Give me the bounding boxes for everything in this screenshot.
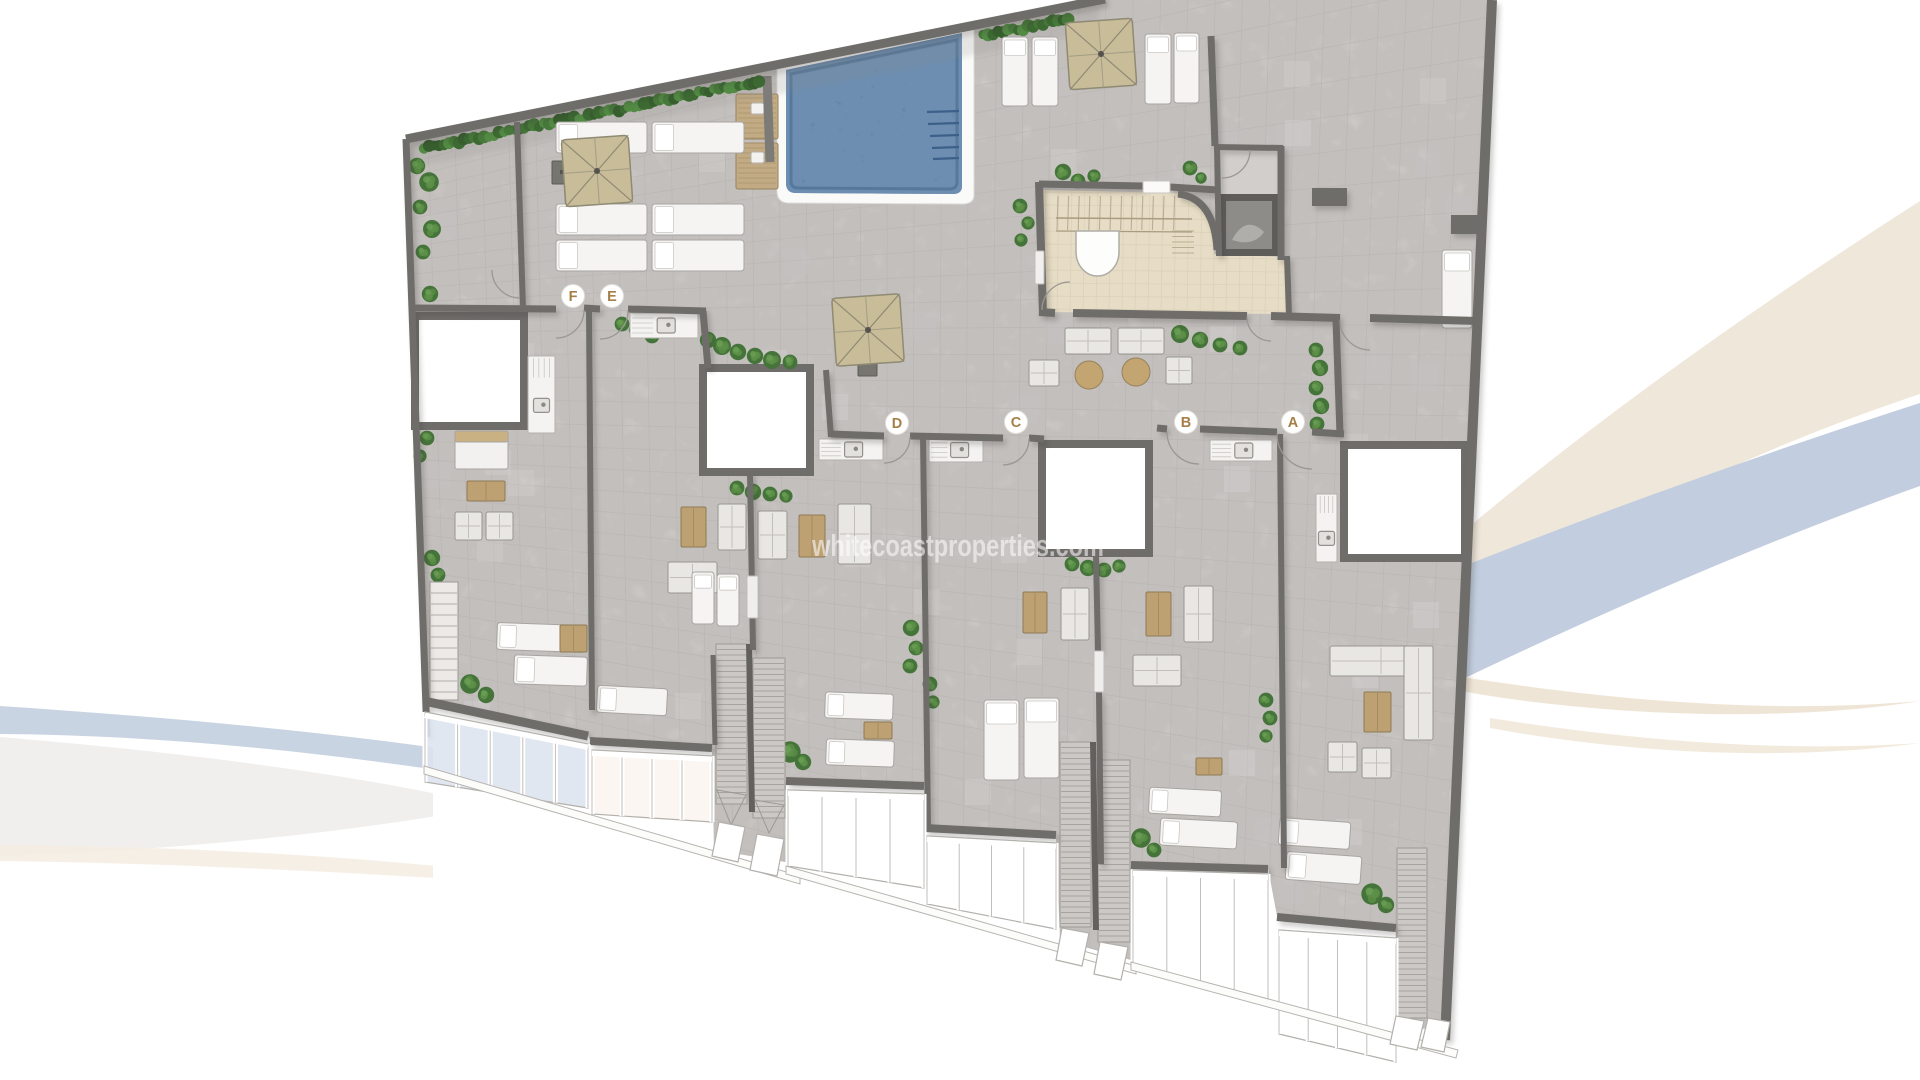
- svg-text:whitecoastproperties.com: whitecoastproperties.com: [811, 528, 1104, 563]
- svg-text:D: D: [892, 416, 902, 432]
- svg-text:E: E: [607, 289, 617, 305]
- svg-text:B: B: [1181, 415, 1191, 431]
- svg-text:C: C: [1011, 415, 1022, 431]
- svg-text:A: A: [1288, 415, 1299, 431]
- svg-text:F: F: [569, 289, 578, 305]
